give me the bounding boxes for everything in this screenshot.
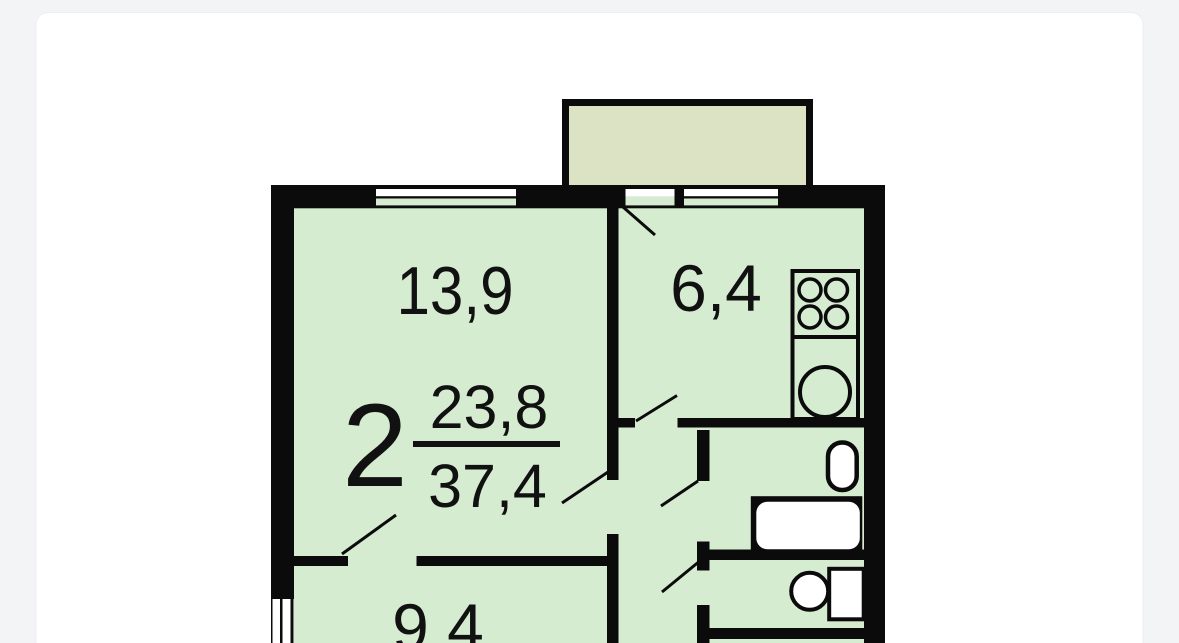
svg-text:23,8: 23,8 xyxy=(430,373,549,441)
svg-text:37,4: 37,4 xyxy=(428,452,547,520)
svg-text:2: 2 xyxy=(342,380,408,512)
svg-text:13,9: 13,9 xyxy=(396,253,513,329)
svg-text:6,4: 6,4 xyxy=(670,251,762,325)
svg-text:9,4: 9,4 xyxy=(392,590,484,643)
